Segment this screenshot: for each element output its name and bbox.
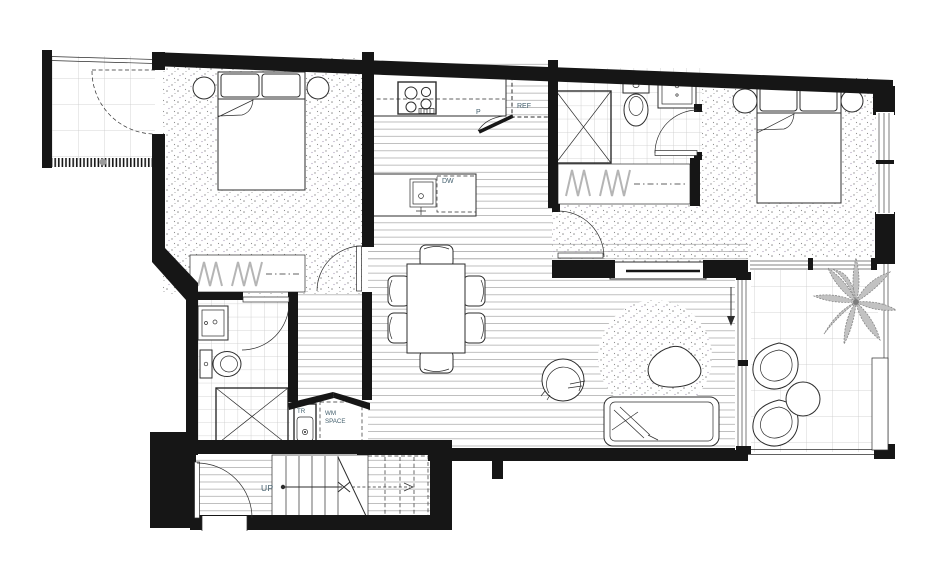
floor-plan-canvas: P REF DW TR WM SPACE UP [0,0,935,569]
stairs-up-label: UP [261,483,274,493]
toilet-icon [623,78,649,126]
wm-space-label-line1: WM [325,410,336,417]
dishwasher-label: DW [442,178,454,185]
dining-chair-icon [463,313,485,343]
balcony-table-icon [786,382,820,416]
trough-label: TR [297,408,306,415]
bedside-table-icon [193,77,215,99]
planter-box [872,358,888,450]
toilet-icon [200,350,241,378]
bed-icon [218,72,305,190]
wardrobe-icon [190,255,305,292]
bedside-table-icon [733,89,757,113]
balcony-top-left-floor [50,56,155,167]
dining-chair-icon [463,276,485,306]
kitchen-island [368,174,476,216]
pantry-label: P [476,109,481,116]
bedside-table-icon [307,77,329,99]
desk-icon [610,262,706,279]
sofa-icon [604,397,719,446]
vanity-basin-icon [198,306,228,340]
floor-plan: P REF DW TR WM SPACE UP [0,0,935,569]
bed-icon [757,85,841,203]
bedroom2-window [876,112,894,214]
fridge-label: REF [517,103,531,110]
robe-bedroom2 [558,164,690,204]
armchair-icon [541,359,585,401]
wm-space-label-line2: SPACE [325,418,346,425]
